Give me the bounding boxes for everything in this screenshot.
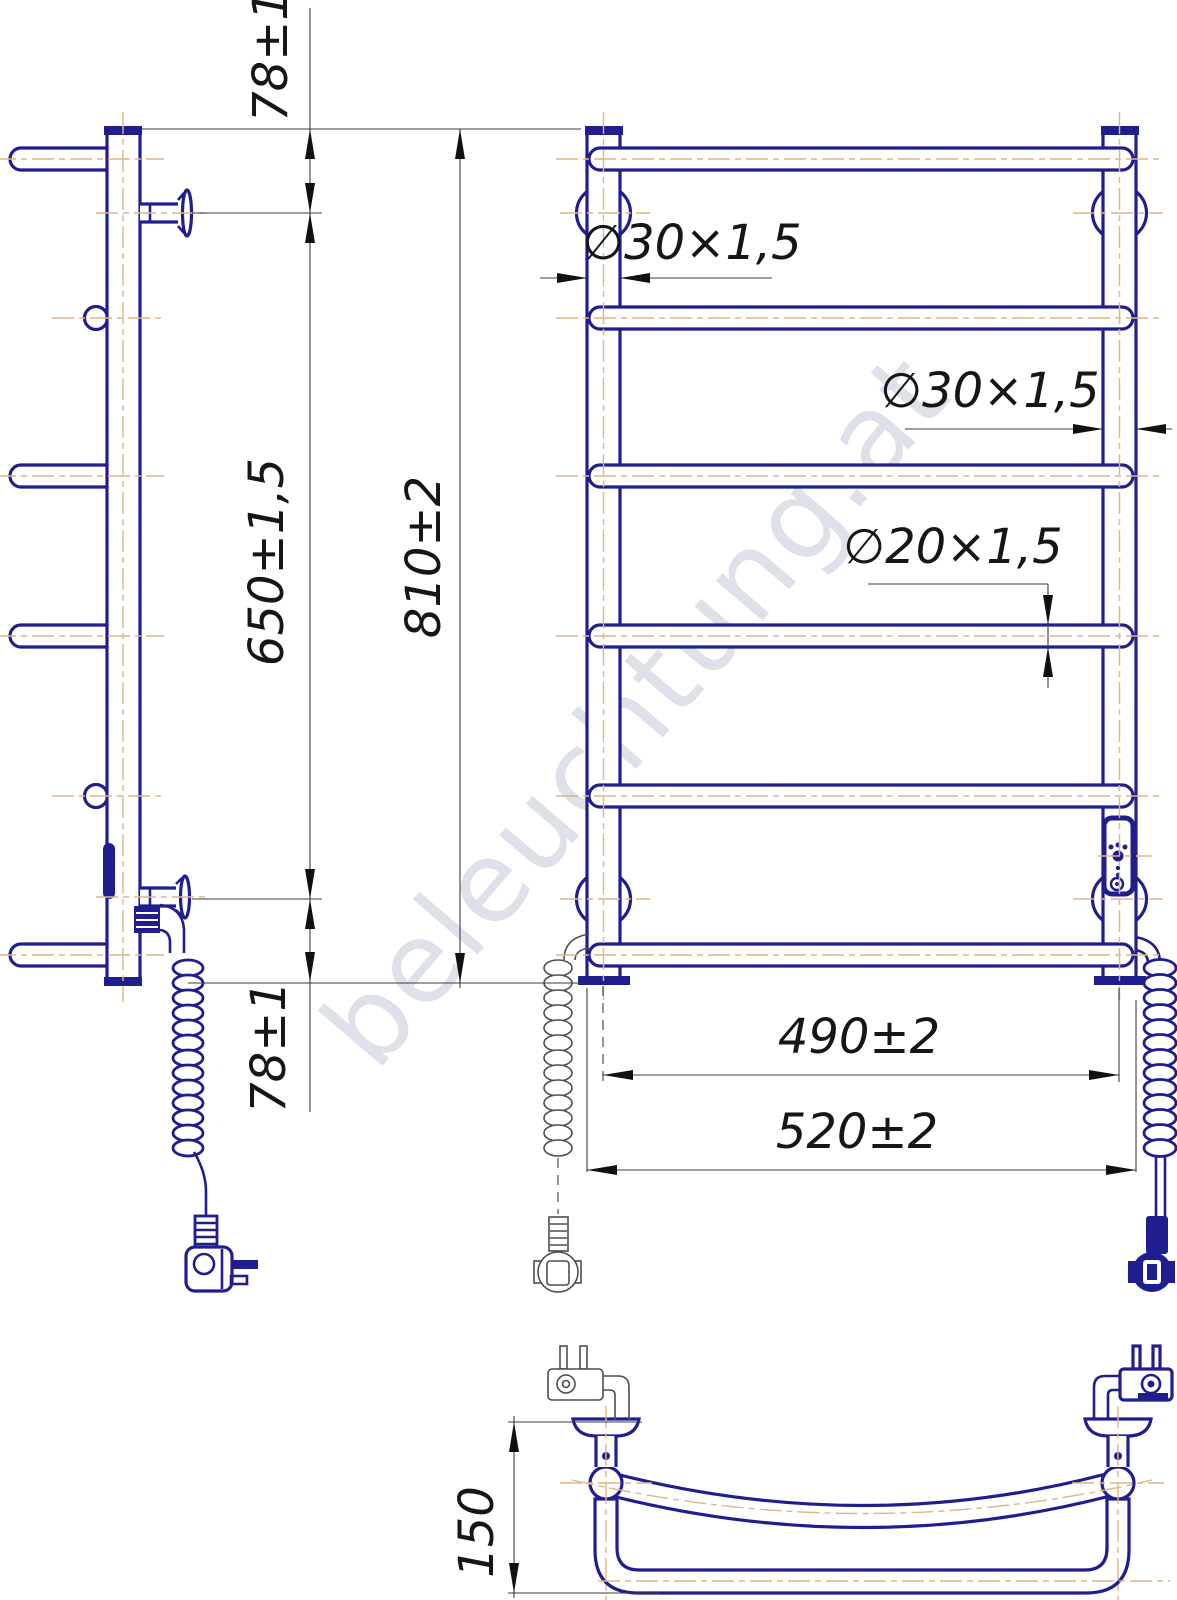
dim-label-centers-width: 490±2 bbox=[778, 1009, 940, 1065]
side-coil-cable bbox=[173, 960, 206, 1216]
bottom-view bbox=[548, 1346, 1172, 1600]
cable-sleeve bbox=[549, 1217, 568, 1251]
front-right-coil-cable bbox=[1128, 937, 1176, 1292]
towel-rail-technical-drawing: beleuchtung.at bbox=[0, 0, 1177, 1600]
dim-label-rung-dia: ∅20×1,5 bbox=[843, 519, 1062, 575]
cable-cover bbox=[103, 843, 115, 899]
dim-label-side-bottom-offset: 78±1 bbox=[241, 981, 297, 1113]
dim-label-overall-width: 520±2 bbox=[776, 1104, 938, 1160]
dim-label-front-height: 810±2 bbox=[396, 476, 452, 638]
plug-side-view bbox=[1094, 1346, 1172, 1420]
dim-label-depth: 150 bbox=[449, 1486, 505, 1578]
side-view bbox=[0, 112, 258, 1291]
dim-label-tube-right-dia: ∅30×1,5 bbox=[880, 363, 1099, 419]
front-left-coil-cable bbox=[534, 934, 589, 1292]
cable-sleeve bbox=[1146, 1216, 1168, 1254]
dim-label-tube-left-dia: ∅30×1,5 bbox=[582, 215, 801, 271]
dim-label-side-top-offset: 78±1 bbox=[243, 0, 299, 122]
side-plug bbox=[186, 1247, 258, 1291]
drawing-canvas: beleuchtung.at bbox=[0, 0, 1177, 1600]
watermark: beleuchtung.at bbox=[297, 329, 974, 1091]
dim-label-side-span: 650±1,5 bbox=[239, 458, 295, 666]
plug-bottom-view bbox=[534, 1252, 581, 1292]
plug-side-view bbox=[548, 1346, 629, 1420]
cable-elbow bbox=[160, 930, 170, 953]
plug-bottom-view bbox=[1128, 1252, 1175, 1292]
